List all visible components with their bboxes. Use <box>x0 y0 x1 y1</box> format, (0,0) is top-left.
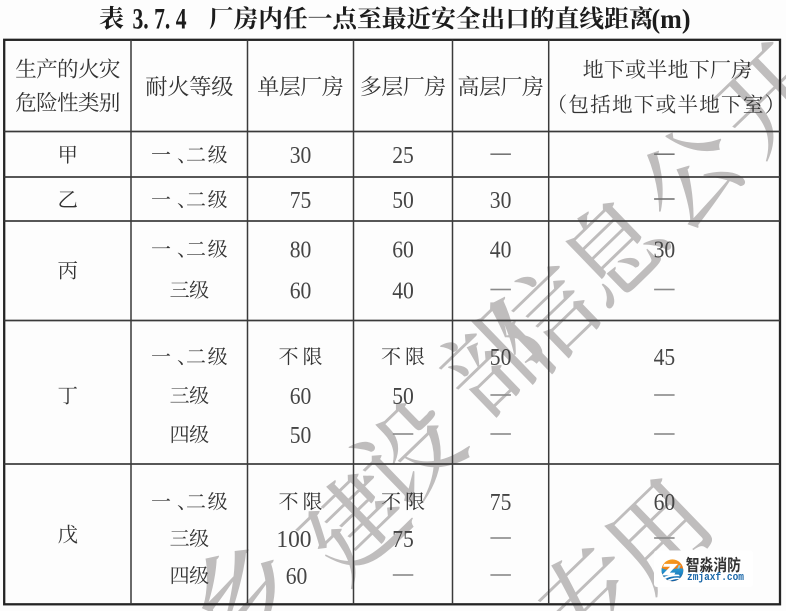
svg-text:50: 50 <box>392 187 414 214</box>
svg-text:60: 60 <box>654 489 676 516</box>
svg-text:80: 80 <box>290 237 312 264</box>
svg-text:60: 60 <box>290 383 312 410</box>
svg-text:40: 40 <box>392 278 414 305</box>
svg-text:zmjaxf.com: zmjaxf.com <box>687 572 744 584</box>
svg-text:100: 100 <box>276 526 311 553</box>
svg-text:60: 60 <box>290 278 312 305</box>
svg-text:30: 30 <box>654 237 676 264</box>
svg-text:75: 75 <box>490 489 512 516</box>
svg-text:45: 45 <box>654 344 676 371</box>
svg-text:75: 75 <box>392 526 414 553</box>
svg-text:60: 60 <box>392 237 414 264</box>
svg-text:40: 40 <box>490 237 512 264</box>
svg-text:50: 50 <box>290 422 312 449</box>
svg-text:30: 30 <box>290 142 312 169</box>
svg-text:3. 7. 4: 3. 7. 4 <box>133 2 187 35</box>
svg-text:75: 75 <box>290 187 312 214</box>
svg-text:(m): (m) <box>652 4 691 34</box>
svg-text:60: 60 <box>286 563 308 590</box>
svg-text:50: 50 <box>490 344 512 371</box>
svg-text:25: 25 <box>392 142 414 169</box>
svg-text:50: 50 <box>392 383 414 410</box>
svg-text:30: 30 <box>490 187 512 214</box>
